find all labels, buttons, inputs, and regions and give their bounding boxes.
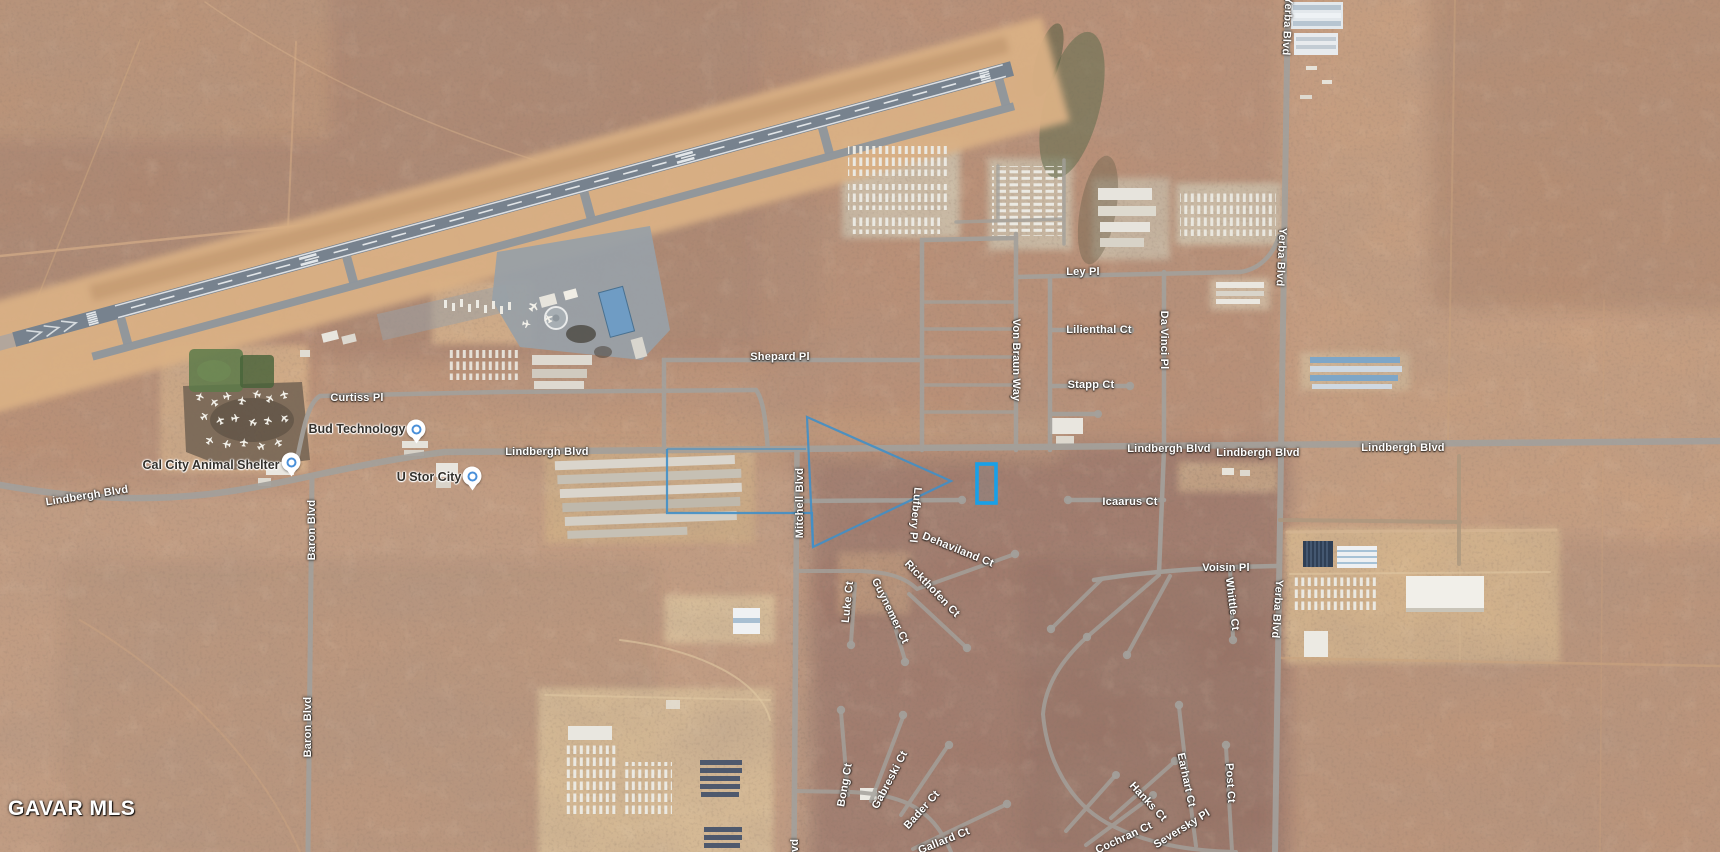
street-label-whittle-ct: Whittle Ct [1223, 577, 1241, 631]
street-label-rickthofen-ct: Rickthofen Ct [902, 558, 962, 620]
poi-label-cal-city-animal-shelter: Cal City Animal Shelter [142, 458, 279, 472]
street-label-von-braun-way: Von Braun Way [1010, 319, 1022, 402]
street-label-baron-blvd: Baron Blvd [306, 500, 318, 561]
watermark-gavar-mls: GAVAR MLS [8, 797, 135, 821]
street-label-stapp-ct: Stapp Ct [1068, 379, 1115, 391]
street-label-dehaviland-ct: Dehaviland Ct [921, 530, 996, 570]
satellite-map: Lindbergh BlvdLindbergh BlvdLindbergh Bl… [0, 0, 1720, 852]
street-label-hanks-ct: Hanks Ct [1127, 780, 1169, 824]
street-label-yerba-blvd: Yerba Blvd [1269, 579, 1285, 639]
street-label-lindbergh-blvd: Lindbergh Blvd [1127, 443, 1210, 455]
street-label-da-vinci-pl: Da Vinci Pl [1158, 311, 1170, 370]
street-label-baron-blvd: Baron Blvd [302, 697, 314, 758]
street-label-lufbery-pl: Lufbery Pl [907, 487, 924, 544]
street-label-shepard-pl: Shepard Pl [750, 351, 809, 363]
poi-marker-icon [407, 420, 426, 439]
street-label-lilienthal-ct: Lilienthal Ct [1066, 324, 1132, 336]
street-label-icaarus-ct: Icaarus Ct [1102, 496, 1157, 508]
street-label-guynemer-ct: Guynemer Ct [869, 576, 911, 645]
street-label-lindbergh-blvd: Lindbergh Blvd [505, 446, 588, 458]
street-label-voisin-pl: Voisin Pl [1202, 562, 1249, 574]
street-label-curtiss-pl: Curtiss Pl [330, 392, 383, 404]
map-labels: Lindbergh BlvdLindbergh BlvdLindbergh Bl… [0, 0, 1720, 852]
street-label-yerba-blvd: Yerba Blvd [1279, 0, 1294, 56]
street-label-lindbergh-blvd: Lindbergh Blvd [1361, 442, 1444, 454]
poi-marker-icon [282, 453, 301, 472]
street-label-yerba-blvd: Yerba Blvd [1273, 227, 1288, 286]
street-label-lindbergh-blvd: Lindbergh Blvd [1216, 447, 1299, 459]
poi-label-bud-technology: Bud Technology [309, 422, 406, 436]
street-label-cochran-ct: Cochran Ct [1094, 820, 1155, 852]
street-label-earhart-ct: Earhart Ct [1174, 752, 1197, 808]
street-label-bader-ct: Bader Ct [902, 788, 943, 831]
street-label-post-ct: Post Ct [1223, 763, 1237, 803]
street-label-gabreski-ct: Gabreski Ct [870, 749, 911, 811]
poi-label-u-stor-city: U Stor City [397, 470, 462, 484]
street-label-mitchell-blvd: Mitchell Blvd [794, 468, 806, 538]
street-label-mitchell-blvd: Mitchell Blvd [789, 839, 801, 852]
street-label-gallard-ct: Gallard Ct [916, 825, 971, 852]
street-label-ley-pl: Ley Pl [1066, 266, 1100, 278]
street-label-luke-ct: Luke Ct [840, 581, 856, 624]
poi-marker-icon [463, 467, 482, 486]
street-label-bong-ct: Bong Ct [835, 762, 854, 808]
street-label-lindbergh-blvd: Lindbergh Blvd [45, 484, 129, 509]
